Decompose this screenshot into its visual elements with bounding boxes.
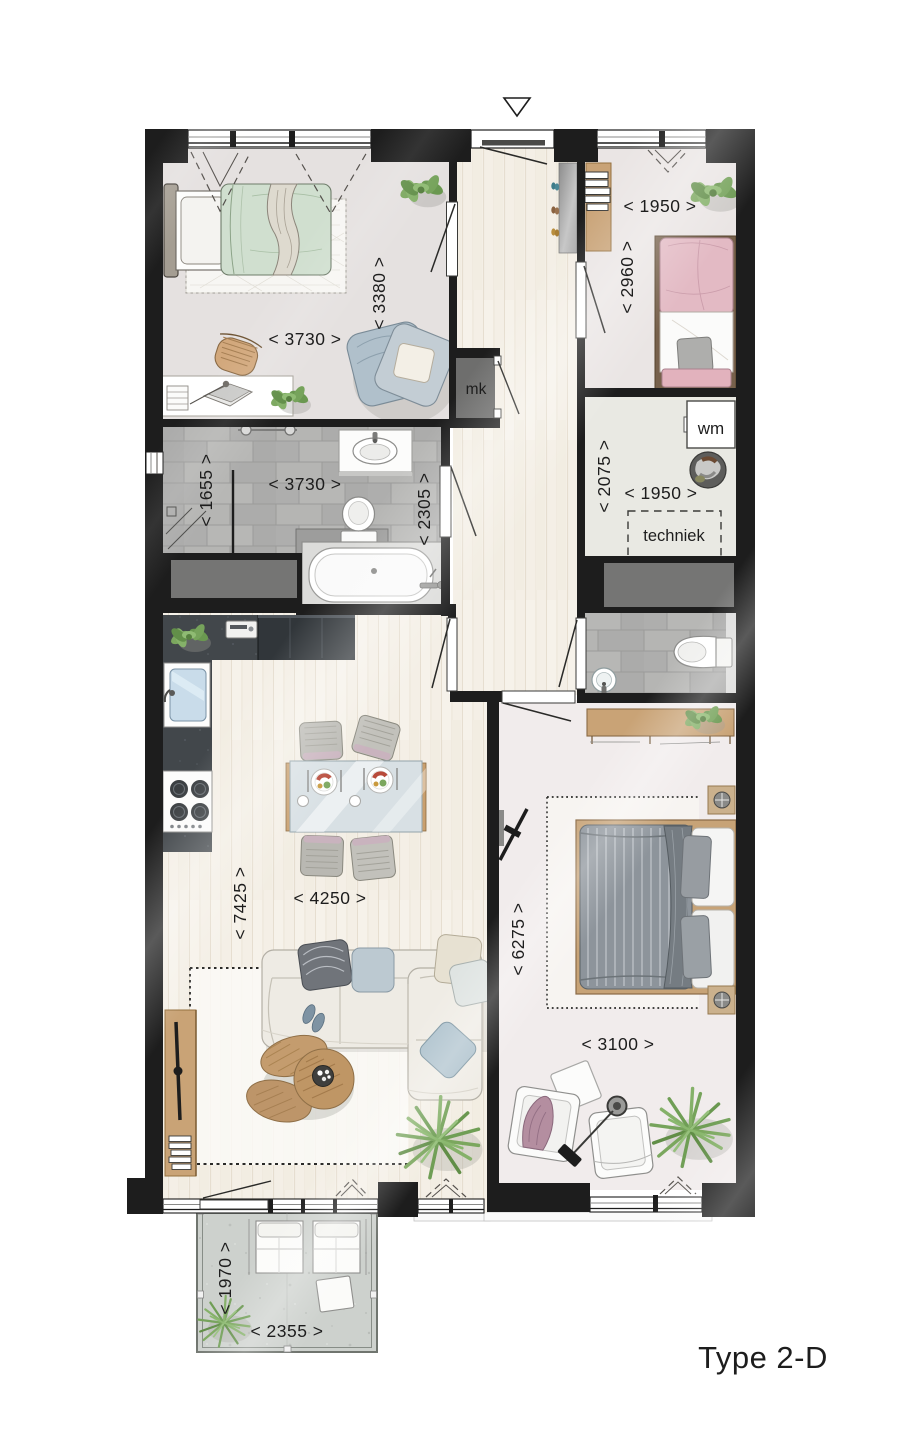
svg-text:< 1655 >: < 1655 > (196, 453, 216, 526)
svg-text:< 2075 >: < 2075 > (594, 439, 614, 512)
svg-text:< 3730 >: < 3730 > (268, 474, 341, 494)
svg-text:< 6275 >: < 6275 > (508, 902, 528, 975)
svg-text:< 1950 >: < 1950 > (623, 196, 696, 216)
svg-text:Type 2-D: Type 2-D (698, 1340, 828, 1375)
svg-text:< 2960 >: < 2960 > (617, 240, 637, 313)
svg-text:< 2305 >: < 2305 > (414, 472, 434, 545)
svg-text:< 3380 >: < 3380 > (369, 256, 389, 329)
svg-text:< 1970 >: < 1970 > (215, 1241, 235, 1314)
svg-text:techniek: techniek (643, 527, 705, 545)
svg-text:< 4250 >: < 4250 > (293, 888, 366, 908)
svg-text:mk: mk (466, 381, 487, 398)
svg-text:< 2355 >: < 2355 > (250, 1321, 323, 1341)
svg-text:< 1950 >: < 1950 > (624, 483, 697, 503)
svg-text:wm: wm (697, 419, 724, 438)
svg-text:< 3730 >: < 3730 > (268, 329, 341, 349)
svg-text:< 3100 >: < 3100 > (581, 1034, 654, 1054)
svg-text:< 7425 >: < 7425 > (230, 866, 250, 939)
